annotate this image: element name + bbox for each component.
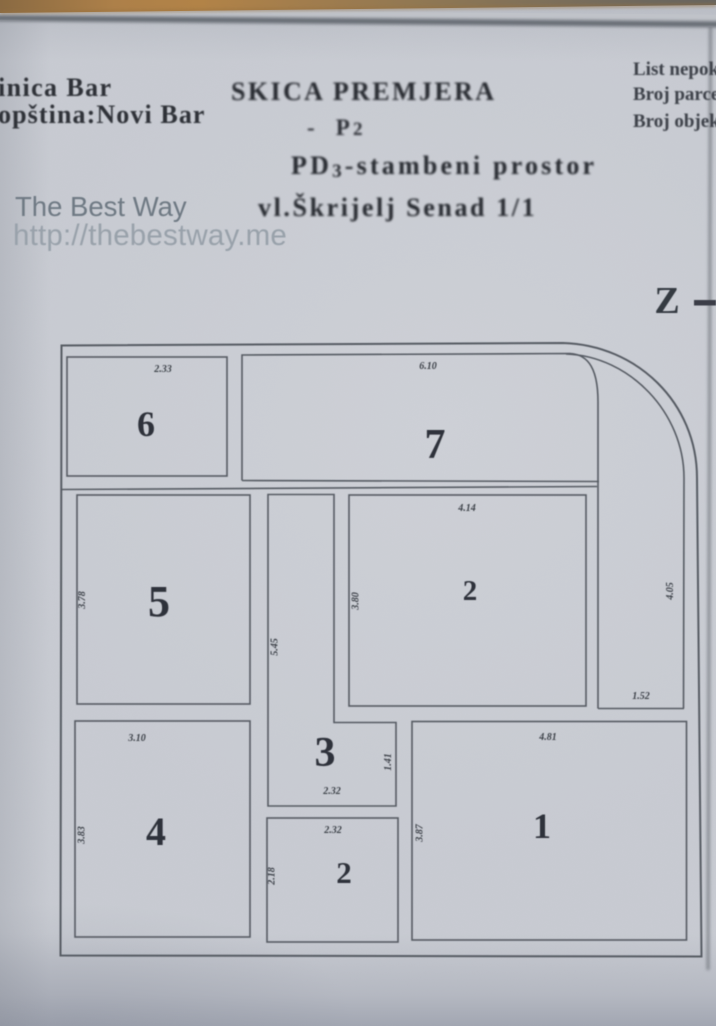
svg-text:4: 4 (146, 809, 166, 854)
svg-text:4.81: 4.81 (538, 732, 557, 743)
svg-text:3.87: 3.87 (415, 823, 426, 843)
svg-text:2.32: 2.32 (322, 786, 341, 797)
svg-text:4.14: 4.14 (457, 503, 476, 514)
svg-text:1.41: 1.41 (383, 753, 394, 771)
svg-text:2: 2 (463, 575, 478, 607)
svg-text:2.18: 2.18 (267, 867, 278, 886)
svg-text:3.78: 3.78 (77, 591, 88, 610)
svg-text:4.05: 4.05 (665, 582, 676, 601)
svg-text:3: 3 (315, 730, 336, 776)
svg-text:1: 1 (533, 806, 551, 846)
svg-text:2.32: 2.32 (323, 825, 342, 836)
svg-text:7: 7 (425, 422, 446, 468)
svg-text:3.10: 3.10 (127, 733, 146, 744)
svg-text:1.52: 1.52 (632, 691, 650, 702)
svg-text:3.80: 3.80 (351, 592, 362, 611)
svg-text:2.33: 2.33 (153, 364, 172, 375)
svg-text:5.45: 5.45 (270, 638, 281, 656)
svg-text:6.10: 6.10 (419, 361, 437, 372)
svg-text:3.83: 3.83 (77, 826, 88, 845)
svg-text:2: 2 (336, 855, 352, 890)
svg-text:5: 5 (148, 577, 170, 626)
svg-text:6: 6 (137, 404, 155, 444)
svg-text:Z: Z (654, 280, 679, 322)
